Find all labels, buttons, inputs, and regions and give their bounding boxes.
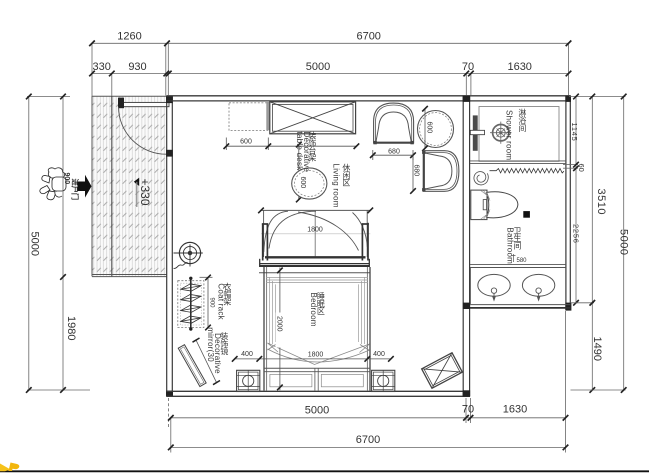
svg-text:mirror(30: mirror(30 bbox=[206, 327, 215, 362]
svg-text:2256: 2256 bbox=[572, 224, 581, 244]
svg-text:1490: 1490 bbox=[591, 337, 603, 361]
svg-text:680: 680 bbox=[388, 148, 400, 155]
svg-text:5000: 5000 bbox=[29, 232, 41, 256]
svg-text:6700: 6700 bbox=[356, 434, 380, 446]
svg-text:+330: +330 bbox=[138, 179, 152, 206]
svg-text:70: 70 bbox=[462, 61, 474, 73]
svg-text:1145: 1145 bbox=[570, 123, 579, 142]
svg-text:Bedroom: Bedroom bbox=[309, 293, 318, 327]
svg-text:930: 930 bbox=[128, 61, 146, 73]
svg-text:70: 70 bbox=[462, 404, 474, 416]
svg-text:60: 60 bbox=[577, 164, 586, 172]
svg-text:3510: 3510 bbox=[595, 189, 607, 215]
svg-text:5000: 5000 bbox=[618, 229, 630, 255]
svg-text:table desk: table desk bbox=[295, 132, 304, 172]
svg-text:Living room: Living room bbox=[332, 164, 341, 208]
svg-text:6700: 6700 bbox=[356, 31, 380, 43]
svg-text:1980: 1980 bbox=[65, 316, 77, 340]
svg-text:1800: 1800 bbox=[307, 227, 323, 234]
svg-text:330: 330 bbox=[93, 61, 111, 73]
svg-text:400: 400 bbox=[241, 351, 253, 358]
svg-text:1630: 1630 bbox=[507, 61, 531, 73]
svg-text:1630: 1630 bbox=[503, 404, 527, 416]
svg-text:900: 900 bbox=[208, 298, 214, 309]
svg-text:900: 900 bbox=[63, 173, 70, 185]
svg-text:Bathroom: Bathroom bbox=[506, 227, 515, 264]
svg-text:600: 600 bbox=[299, 177, 306, 189]
svg-text:580: 580 bbox=[517, 258, 528, 264]
svg-text:600: 600 bbox=[240, 139, 252, 146]
svg-text:休闲区: 休闲区 bbox=[342, 163, 350, 188]
svg-text:淋浴间: 淋浴间 bbox=[518, 108, 526, 133]
svg-text:5000: 5000 bbox=[306, 61, 330, 73]
svg-text:Shower room: Shower room bbox=[505, 110, 514, 160]
svg-text:400: 400 bbox=[373, 351, 385, 358]
svg-text:680: 680 bbox=[412, 165, 419, 177]
svg-text:5000: 5000 bbox=[305, 405, 329, 417]
svg-text:2000: 2000 bbox=[276, 316, 283, 332]
svg-text:Coat rack: Coat rack bbox=[217, 283, 226, 320]
svg-text:1800: 1800 bbox=[308, 351, 324, 358]
svg-text:1260: 1260 bbox=[117, 31, 141, 43]
svg-text:600: 600 bbox=[425, 122, 432, 134]
